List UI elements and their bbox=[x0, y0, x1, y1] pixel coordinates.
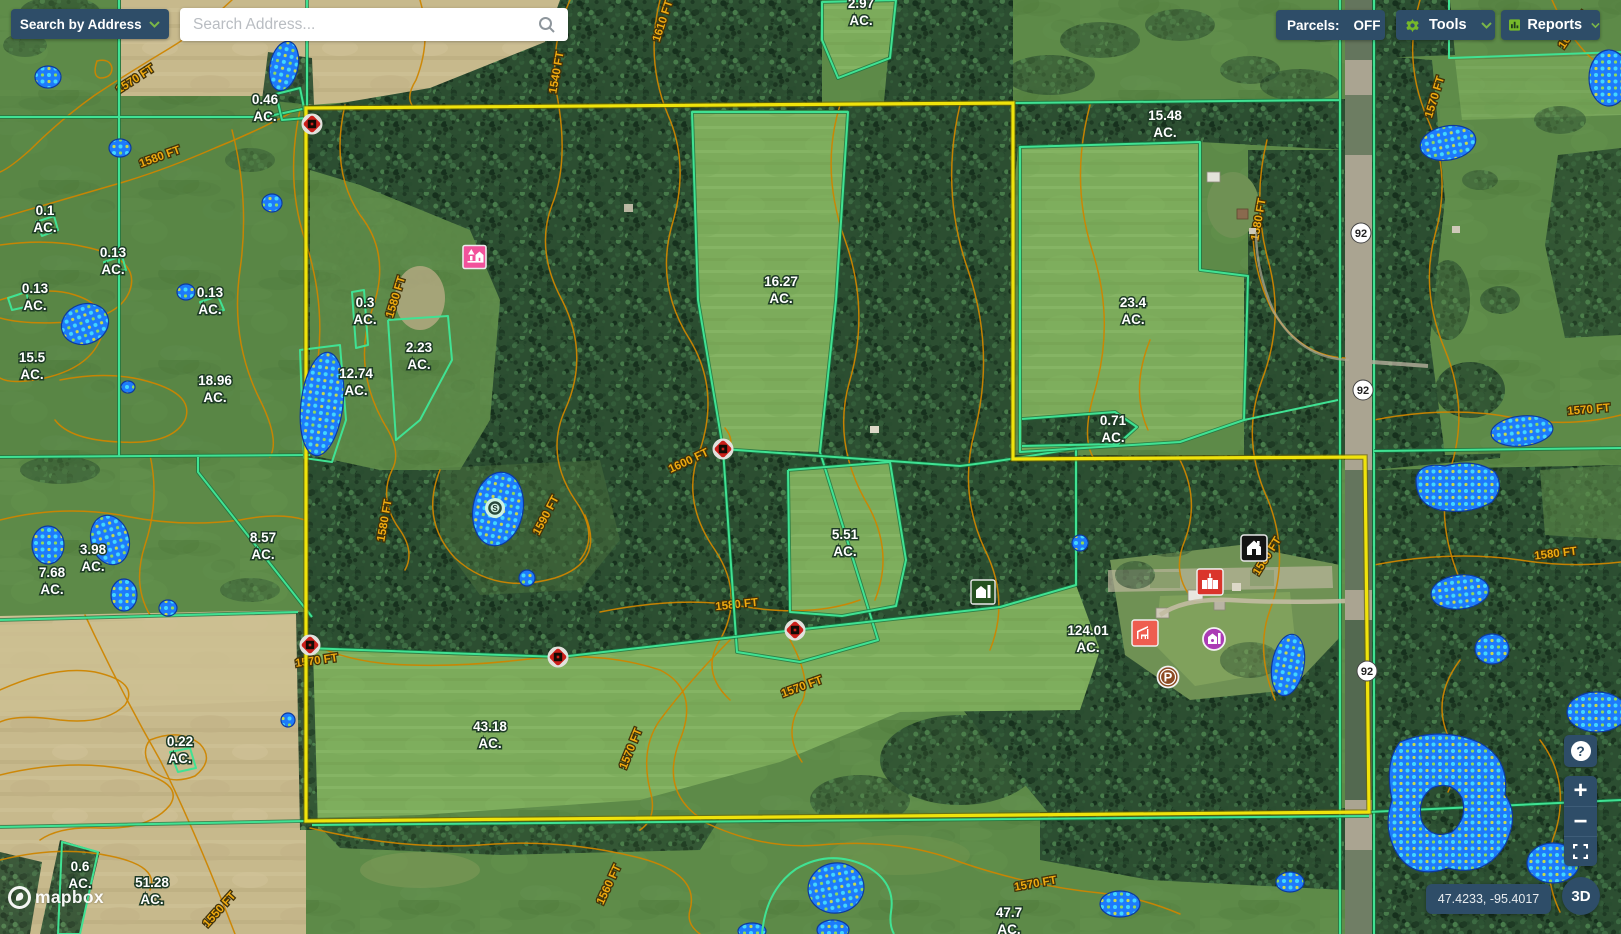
svg-text:47.7AC.: 47.7AC. bbox=[996, 905, 1022, 934]
svg-text:2.97AC.: 2.97AC. bbox=[848, 0, 874, 28]
svg-text:P: P bbox=[1164, 670, 1173, 685]
svg-text:S: S bbox=[492, 504, 498, 513]
